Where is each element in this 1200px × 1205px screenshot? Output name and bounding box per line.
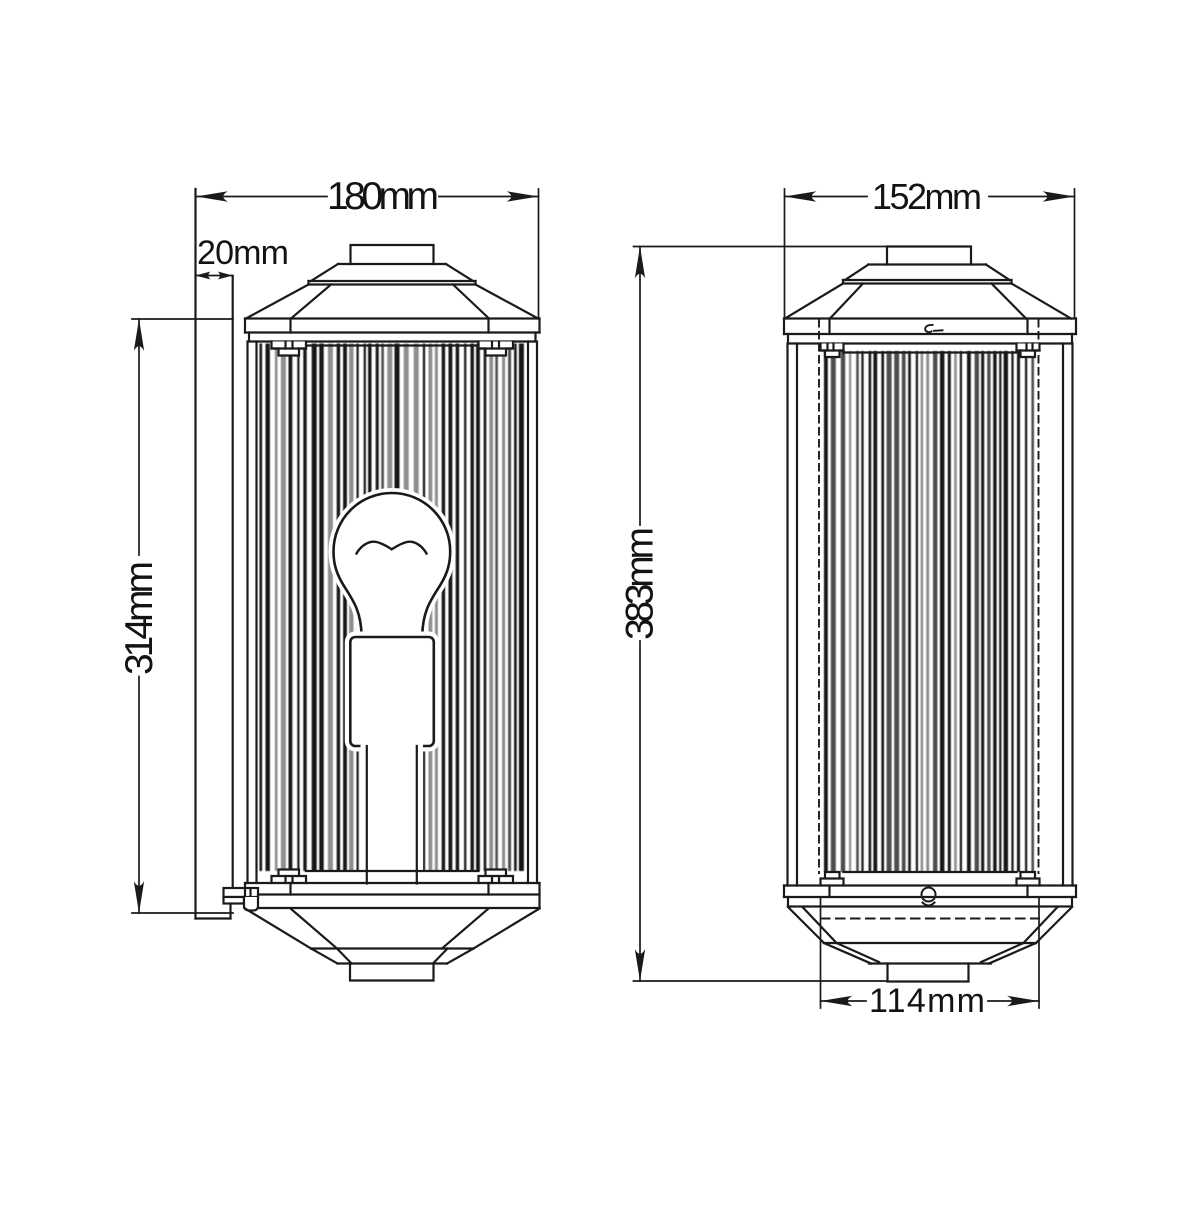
svg-text:114mm: 114mm <box>869 982 985 1020</box>
svg-text:20mm: 20mm <box>197 234 289 272</box>
svg-text:314mm: 314mm <box>118 561 161 675</box>
svg-text:180mm: 180mm <box>327 175 439 218</box>
svg-text:383mm: 383mm <box>619 527 662 640</box>
svg-text:152mm: 152mm <box>872 176 982 217</box>
